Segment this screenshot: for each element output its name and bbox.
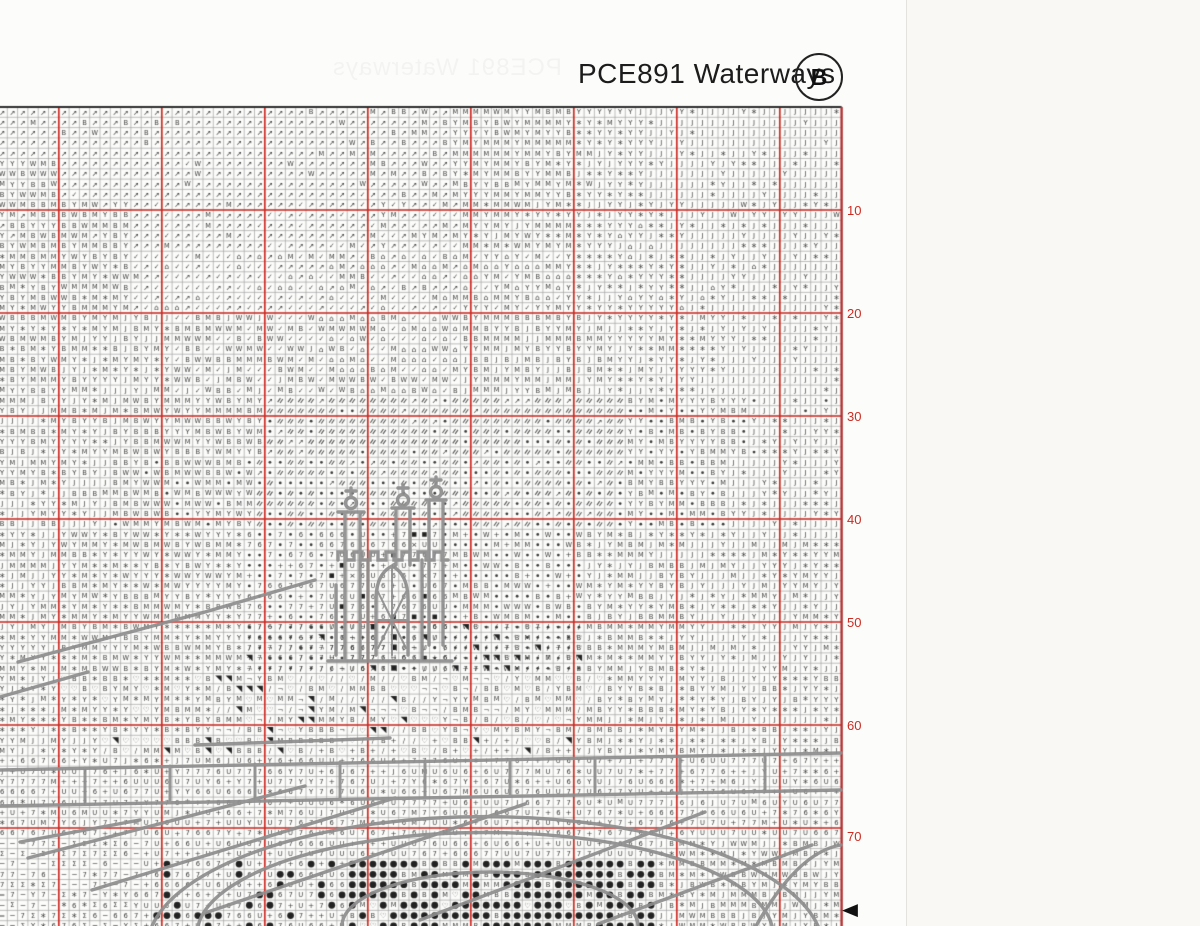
scanned-pattern-page: PCE891 Waterways PCE891 Waterways B xyxy=(0,0,1200,926)
row-number-label: 30 xyxy=(847,409,881,424)
row-number-label: 60 xyxy=(847,718,881,733)
row-number-label: 20 xyxy=(847,306,881,321)
row-number-label: 70 xyxy=(847,829,881,844)
stitch-grid-canvas xyxy=(0,0,1200,926)
center-row-marker-icon: ◀ xyxy=(842,901,858,918)
row-number-label: 50 xyxy=(847,615,881,630)
row-number-label: 40 xyxy=(847,512,881,527)
row-number-label: 10 xyxy=(847,203,881,218)
